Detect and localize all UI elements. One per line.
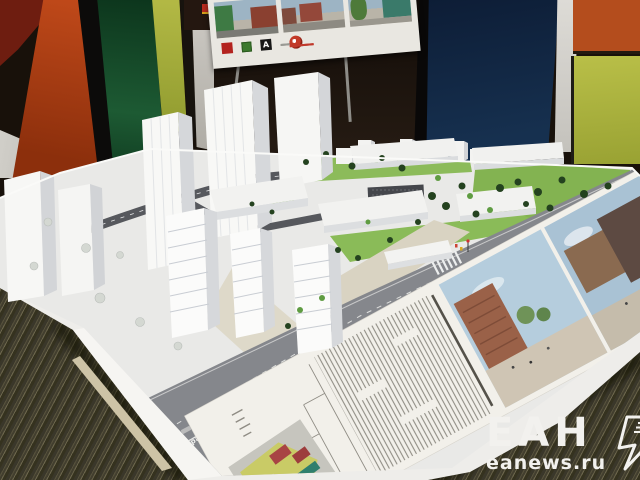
tower bbox=[292, 244, 343, 354]
watermark-title: ЕАН bbox=[486, 413, 606, 453]
lightning-bolt-icon bbox=[611, 414, 640, 472]
watermark-site-url: eanews.ru bbox=[486, 454, 606, 473]
tower bbox=[166, 208, 220, 338]
news-watermark: ЕАН eanews.ru bbox=[486, 413, 640, 473]
flag bbox=[455, 244, 458, 248]
flag bbox=[460, 247, 463, 251]
tower bbox=[230, 228, 275, 338]
exhibit-photo: А bbox=[0, 0, 640, 480]
city-model: Улица Братьев Кашириных bbox=[0, 0, 640, 480]
